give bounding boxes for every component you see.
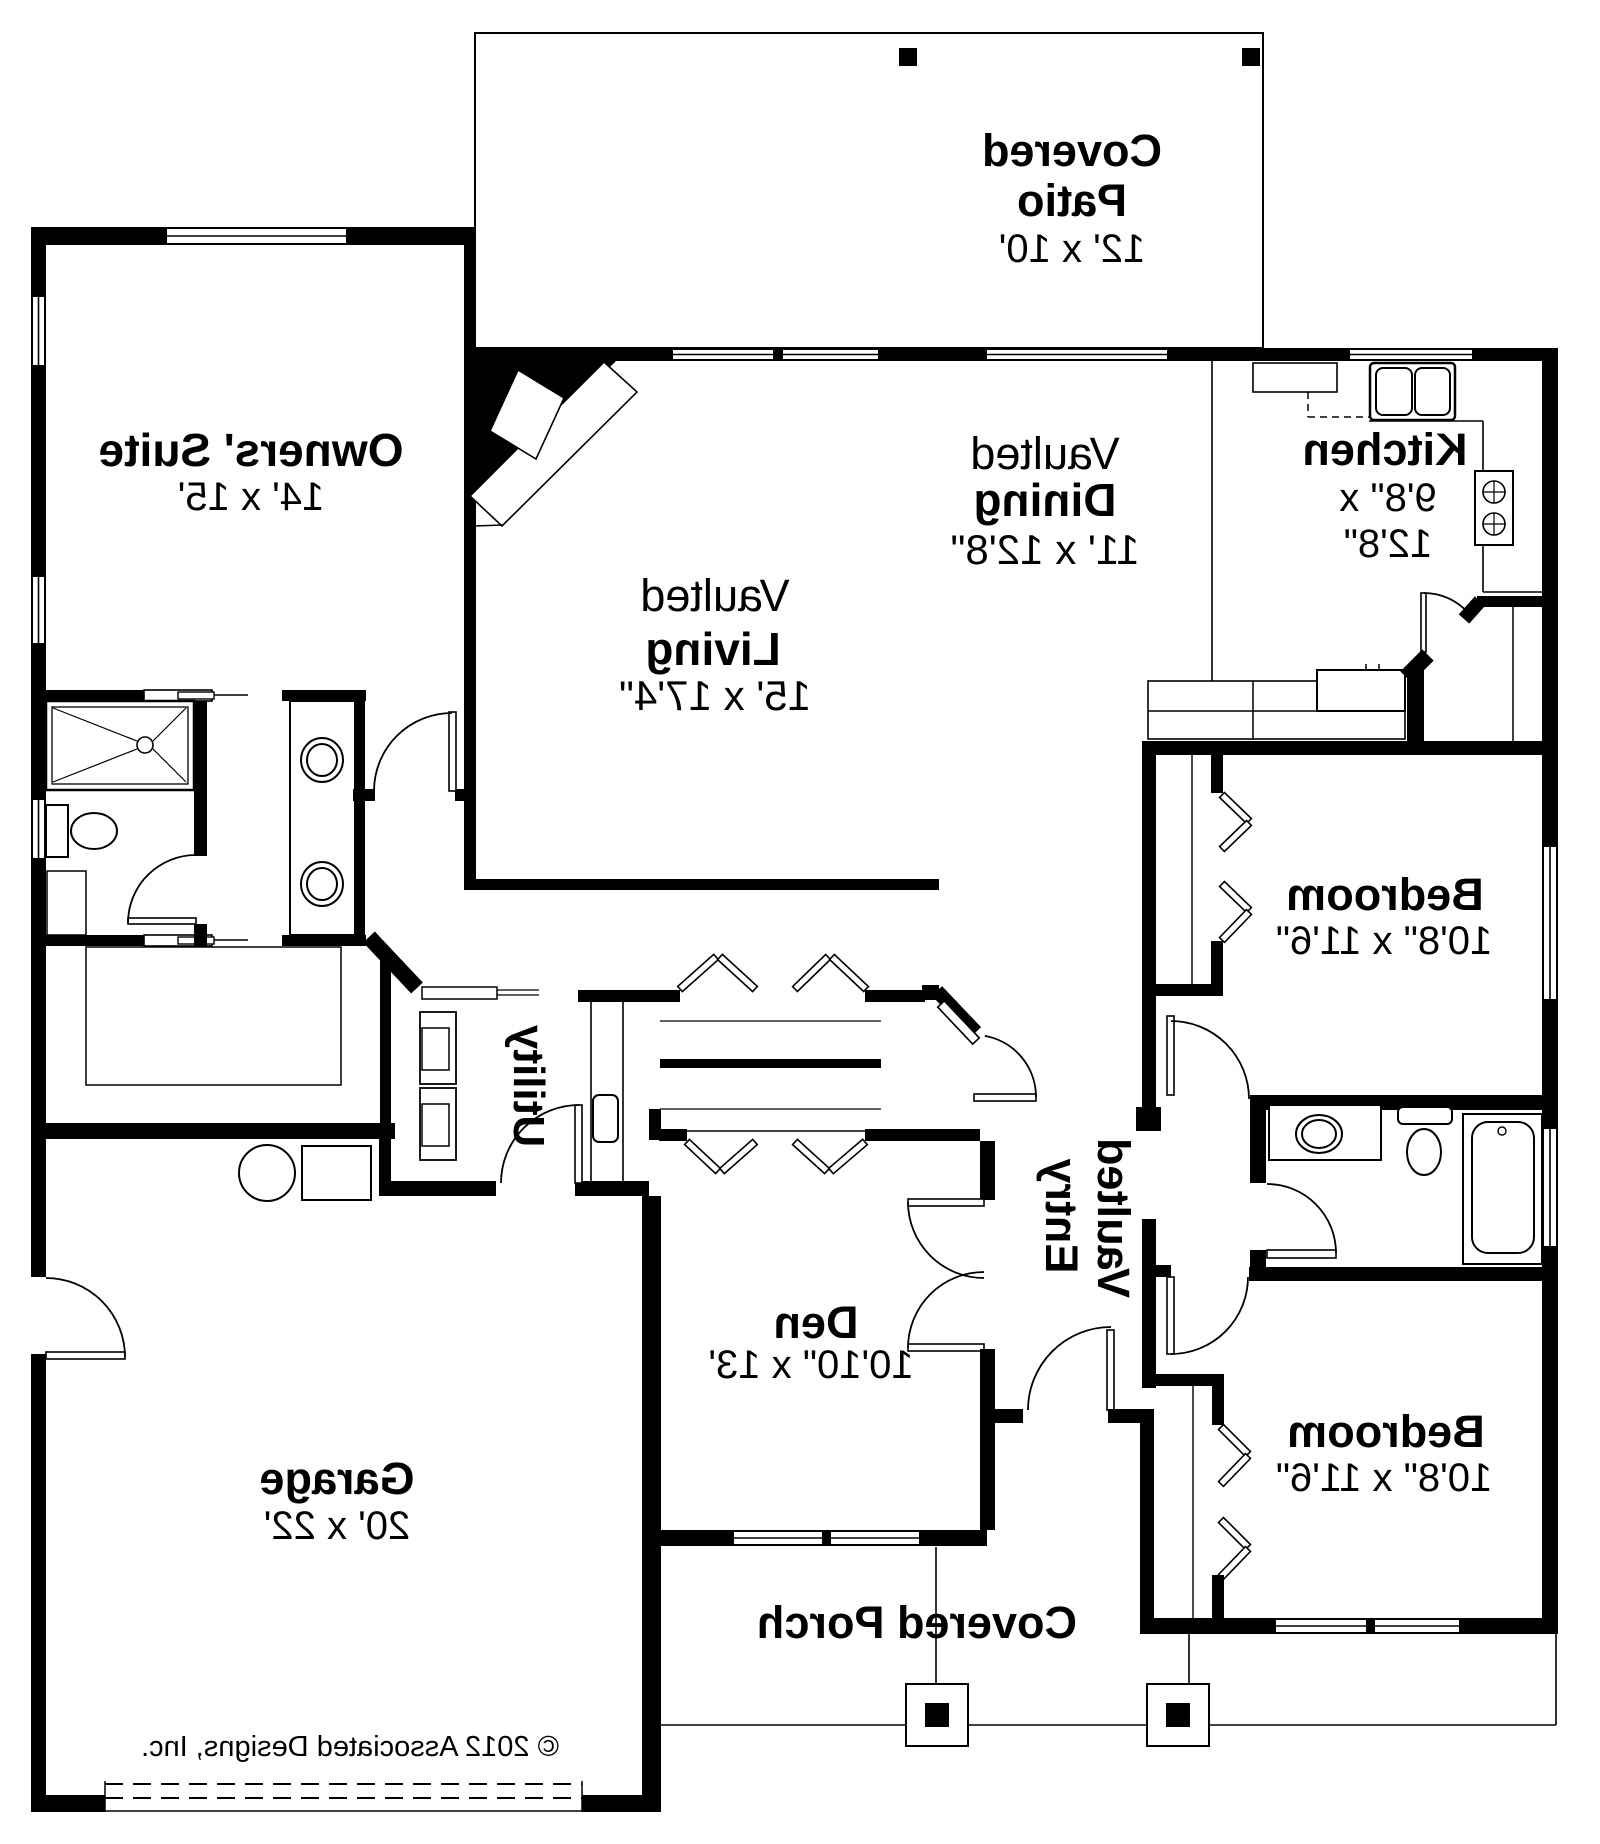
svg-text:12'8": 12'8" — [1344, 522, 1433, 566]
svg-text:Den: Den — [773, 1297, 858, 1348]
svg-text:Living: Living — [645, 623, 780, 675]
svg-text:Covered: Covered — [982, 125, 1162, 176]
svg-text:Dining: Dining — [973, 474, 1116, 526]
svg-text:9'8" x: 9'8" x — [1339, 476, 1436, 520]
svg-text:Vaulted: Vaulted — [970, 428, 1119, 479]
svg-text:Patio: Patio — [1017, 175, 1127, 226]
svg-text:11' x 12'8": 11' x 12'8" — [951, 526, 1140, 573]
svg-text:Owners' Suite: Owners' Suite — [99, 424, 404, 476]
svg-text:© 2012 Associated Designs, Inc: © 2012 Associated Designs, Inc. — [141, 1731, 559, 1763]
svg-text:Vaulted: Vaulted — [640, 570, 789, 621]
svg-text:Vaulted: Vaulted — [1088, 1138, 1139, 1298]
svg-text:14' x 15': 14' x 15' — [178, 475, 324, 519]
svg-text:Kitchen: Kitchen — [1302, 424, 1467, 475]
svg-text:Utility: Utility — [504, 1024, 553, 1147]
svg-text:12' x 10': 12' x 10' — [999, 227, 1145, 271]
svg-text:20' x 22': 20' x 22' — [264, 1504, 410, 1548]
svg-text:Covered Porch: Covered Porch — [757, 1597, 1077, 1648]
svg-text:Bedroom: Bedroom — [1286, 869, 1484, 920]
svg-text:Bedroom: Bedroom — [1287, 1406, 1485, 1457]
svg-text:10'8" x 11'6": 10'8" x 11'6" — [1276, 919, 1492, 963]
svg-text:10'10" x 13': 10'10" x 13' — [708, 1343, 913, 1387]
svg-text:10'8" x 11'6": 10'8" x 11'6" — [1276, 1456, 1492, 1500]
svg-text:15' x 17'4": 15' x 17'4" — [619, 672, 811, 719]
svg-text:Garage: Garage — [259, 1453, 414, 1504]
svg-text:Entry: Entry — [1036, 1158, 1087, 1273]
